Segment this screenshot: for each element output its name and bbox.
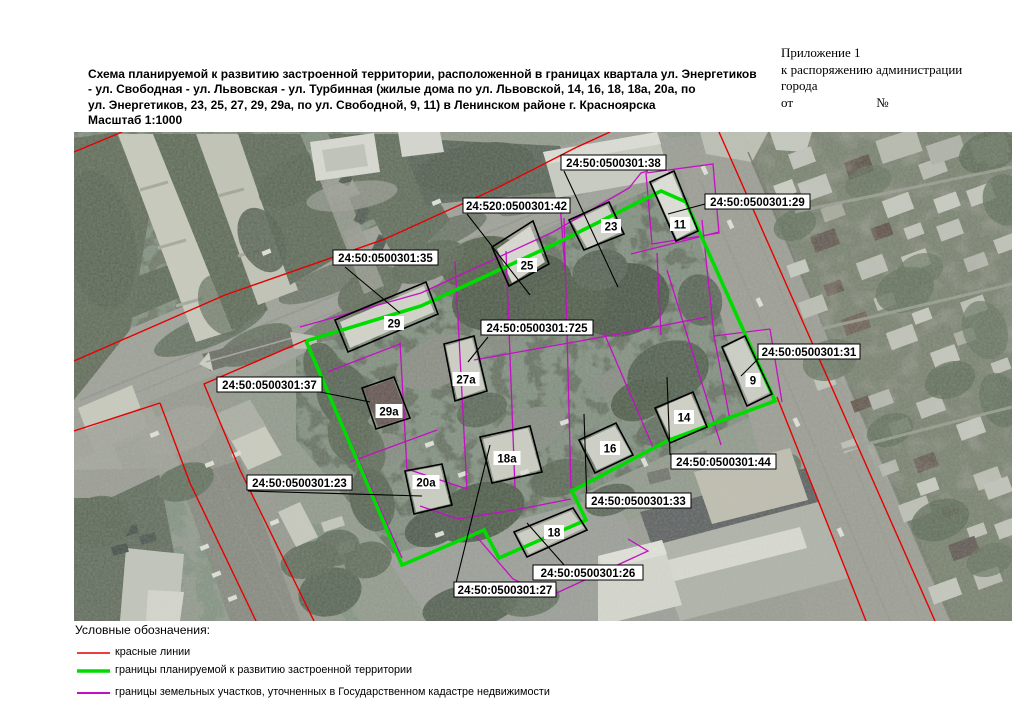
svg-text:9: 9 [750, 376, 756, 388]
svg-text:14: 14 [678, 413, 691, 425]
svg-text:24:50:0500301:44: 24:50:0500301:44 [676, 457, 771, 469]
svg-text:27а: 27а [456, 375, 476, 387]
svg-text:11: 11 [674, 220, 687, 232]
svg-text:23: 23 [605, 222, 618, 234]
svg-text:24:50:0500301:37: 24:50:0500301:37 [222, 380, 317, 392]
svg-text:29а: 29а [379, 407, 399, 419]
svg-text:24:50:0500301:29: 24:50:0500301:29 [710, 197, 805, 209]
svg-text:24:50:0500301:35: 24:50:0500301:35 [338, 253, 433, 265]
svg-text:24:50:0500301:27: 24:50:0500301:27 [458, 585, 553, 597]
svg-text:24:520:0500301:42: 24:520:0500301:42 [466, 201, 567, 213]
svg-text:29: 29 [388, 319, 401, 331]
svg-text:18: 18 [548, 528, 561, 540]
svg-text:24:50:0500301:38: 24:50:0500301:38 [566, 158, 661, 170]
svg-text:24:50:0500301:23: 24:50:0500301:23 [252, 478, 347, 490]
svg-text:18а: 18а [497, 454, 517, 466]
svg-text:24:50:0500301:31: 24:50:0500301:31 [762, 347, 857, 359]
svg-text:16: 16 [604, 444, 617, 456]
svg-text:20а: 20а [416, 478, 436, 490]
svg-text:24:50:0500301:725: 24:50:0500301:725 [486, 323, 588, 335]
svg-text:24:50:0500301:26: 24:50:0500301:26 [541, 568, 636, 580]
svg-text:25: 25 [521, 261, 534, 273]
svg-text:24:50:0500301:33: 24:50:0500301:33 [591, 496, 686, 508]
